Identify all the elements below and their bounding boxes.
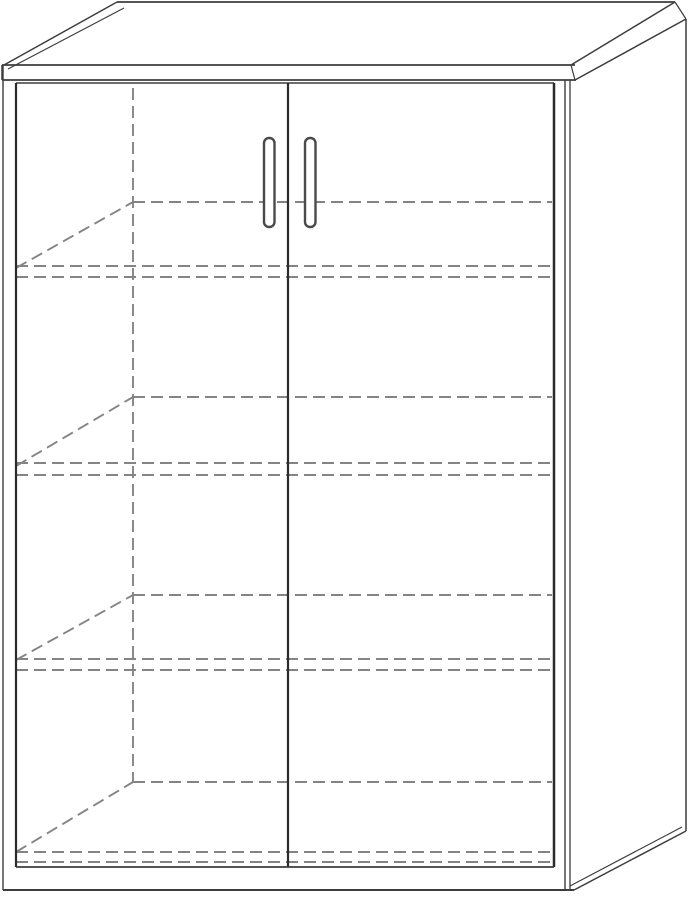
cabinet-svg bbox=[0, 0, 691, 900]
right-door-handle bbox=[305, 138, 316, 227]
page bbox=[0, 0, 691, 900]
left-door-handle bbox=[264, 138, 275, 227]
drawing-background bbox=[0, 0, 691, 900]
